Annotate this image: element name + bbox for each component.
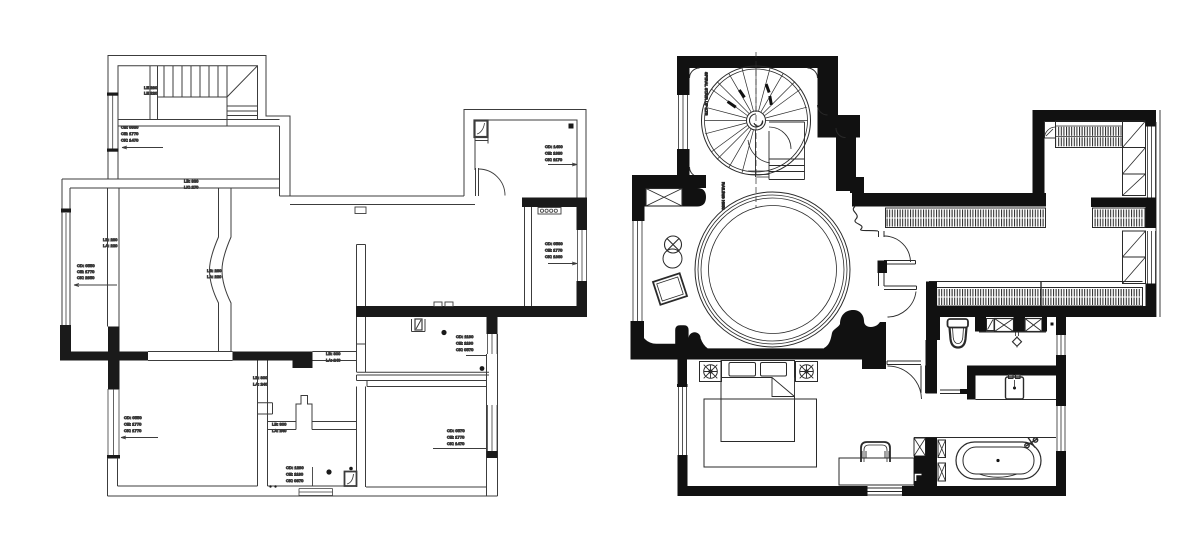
svg-text:CE: 1770: CE: 1770 <box>447 435 465 440</box>
svg-text:CD: 1400: CD: 1400 <box>545 144 563 149</box>
svg-text:CD: 0560: CD: 0560 <box>545 241 563 246</box>
svg-text:CK: 0870: CK: 0870 <box>286 478 304 483</box>
svg-text:LB: 830: LB: 830 <box>184 179 199 184</box>
svg-text:CE: 1770: CE: 1770 <box>124 422 142 427</box>
svg-text:CE: 1770: CE: 1770 <box>77 269 95 274</box>
svg-text:LB: 280: LB: 280 <box>103 237 118 242</box>
svg-text:CB: 0550: CB: 0550 <box>121 125 139 130</box>
svg-text:CK: 1170: CK: 1170 <box>545 157 563 162</box>
svg-text:LK: 270: LK: 270 <box>184 185 199 190</box>
svg-text:RAILING H950: RAILING H950 <box>721 182 726 211</box>
svg-text:LE 280: LE 280 <box>144 85 158 90</box>
svg-text:CK: 1470: CK: 1470 <box>121 138 139 143</box>
svg-text:CE: 1180: CE: 1180 <box>286 472 304 477</box>
svg-text:CD: 1290: CD: 1290 <box>286 465 304 470</box>
svg-text:LA: 240: LA: 240 <box>272 428 287 433</box>
svg-text:CK: 2850: CK: 2850 <box>77 275 95 280</box>
svg-text:LA: 240: LA: 240 <box>253 382 268 387</box>
svg-text:CE: 1190: CE: 1190 <box>456 341 474 346</box>
svg-text:CD: 0570: CD: 0570 <box>447 428 465 433</box>
svg-text:CK: 1770: CK: 1770 <box>124 428 142 433</box>
svg-text:CD: 0550: CD: 0550 <box>77 263 95 268</box>
svg-text:CE: 1770: CE: 1770 <box>121 131 139 136</box>
svg-text:LB: 300: LB: 300 <box>272 422 287 427</box>
svg-text:LA: 240: LA: 240 <box>326 358 341 363</box>
svg-text:LB: 300: LB: 300 <box>253 375 268 380</box>
svg-text:LE 220: LE 220 <box>144 91 158 96</box>
svg-text:CE: 1770: CE: 1770 <box>545 248 563 253</box>
svg-text:CK: 1360: CK: 1360 <box>545 254 563 259</box>
svg-text:SPIRAL STAIR UP 17R: SPIRAL STAIR UP 17R <box>704 72 709 116</box>
svg-text:CD: 0550: CD: 0550 <box>124 415 142 420</box>
svg-text:LA: 220: LA: 220 <box>207 274 222 279</box>
svg-text:LB: 280: LB: 280 <box>207 268 222 273</box>
svg-text:LA: 220: LA: 220 <box>103 243 118 248</box>
svg-text:CK: 0570: CK: 0570 <box>456 347 474 352</box>
svg-text:CK: 1470: CK: 1470 <box>447 441 465 446</box>
svg-text:LB: 300: LB: 300 <box>326 351 341 356</box>
svg-text:CD: 1190: CD: 1190 <box>456 334 474 339</box>
svg-text:CE: 1380: CE: 1380 <box>545 151 563 156</box>
